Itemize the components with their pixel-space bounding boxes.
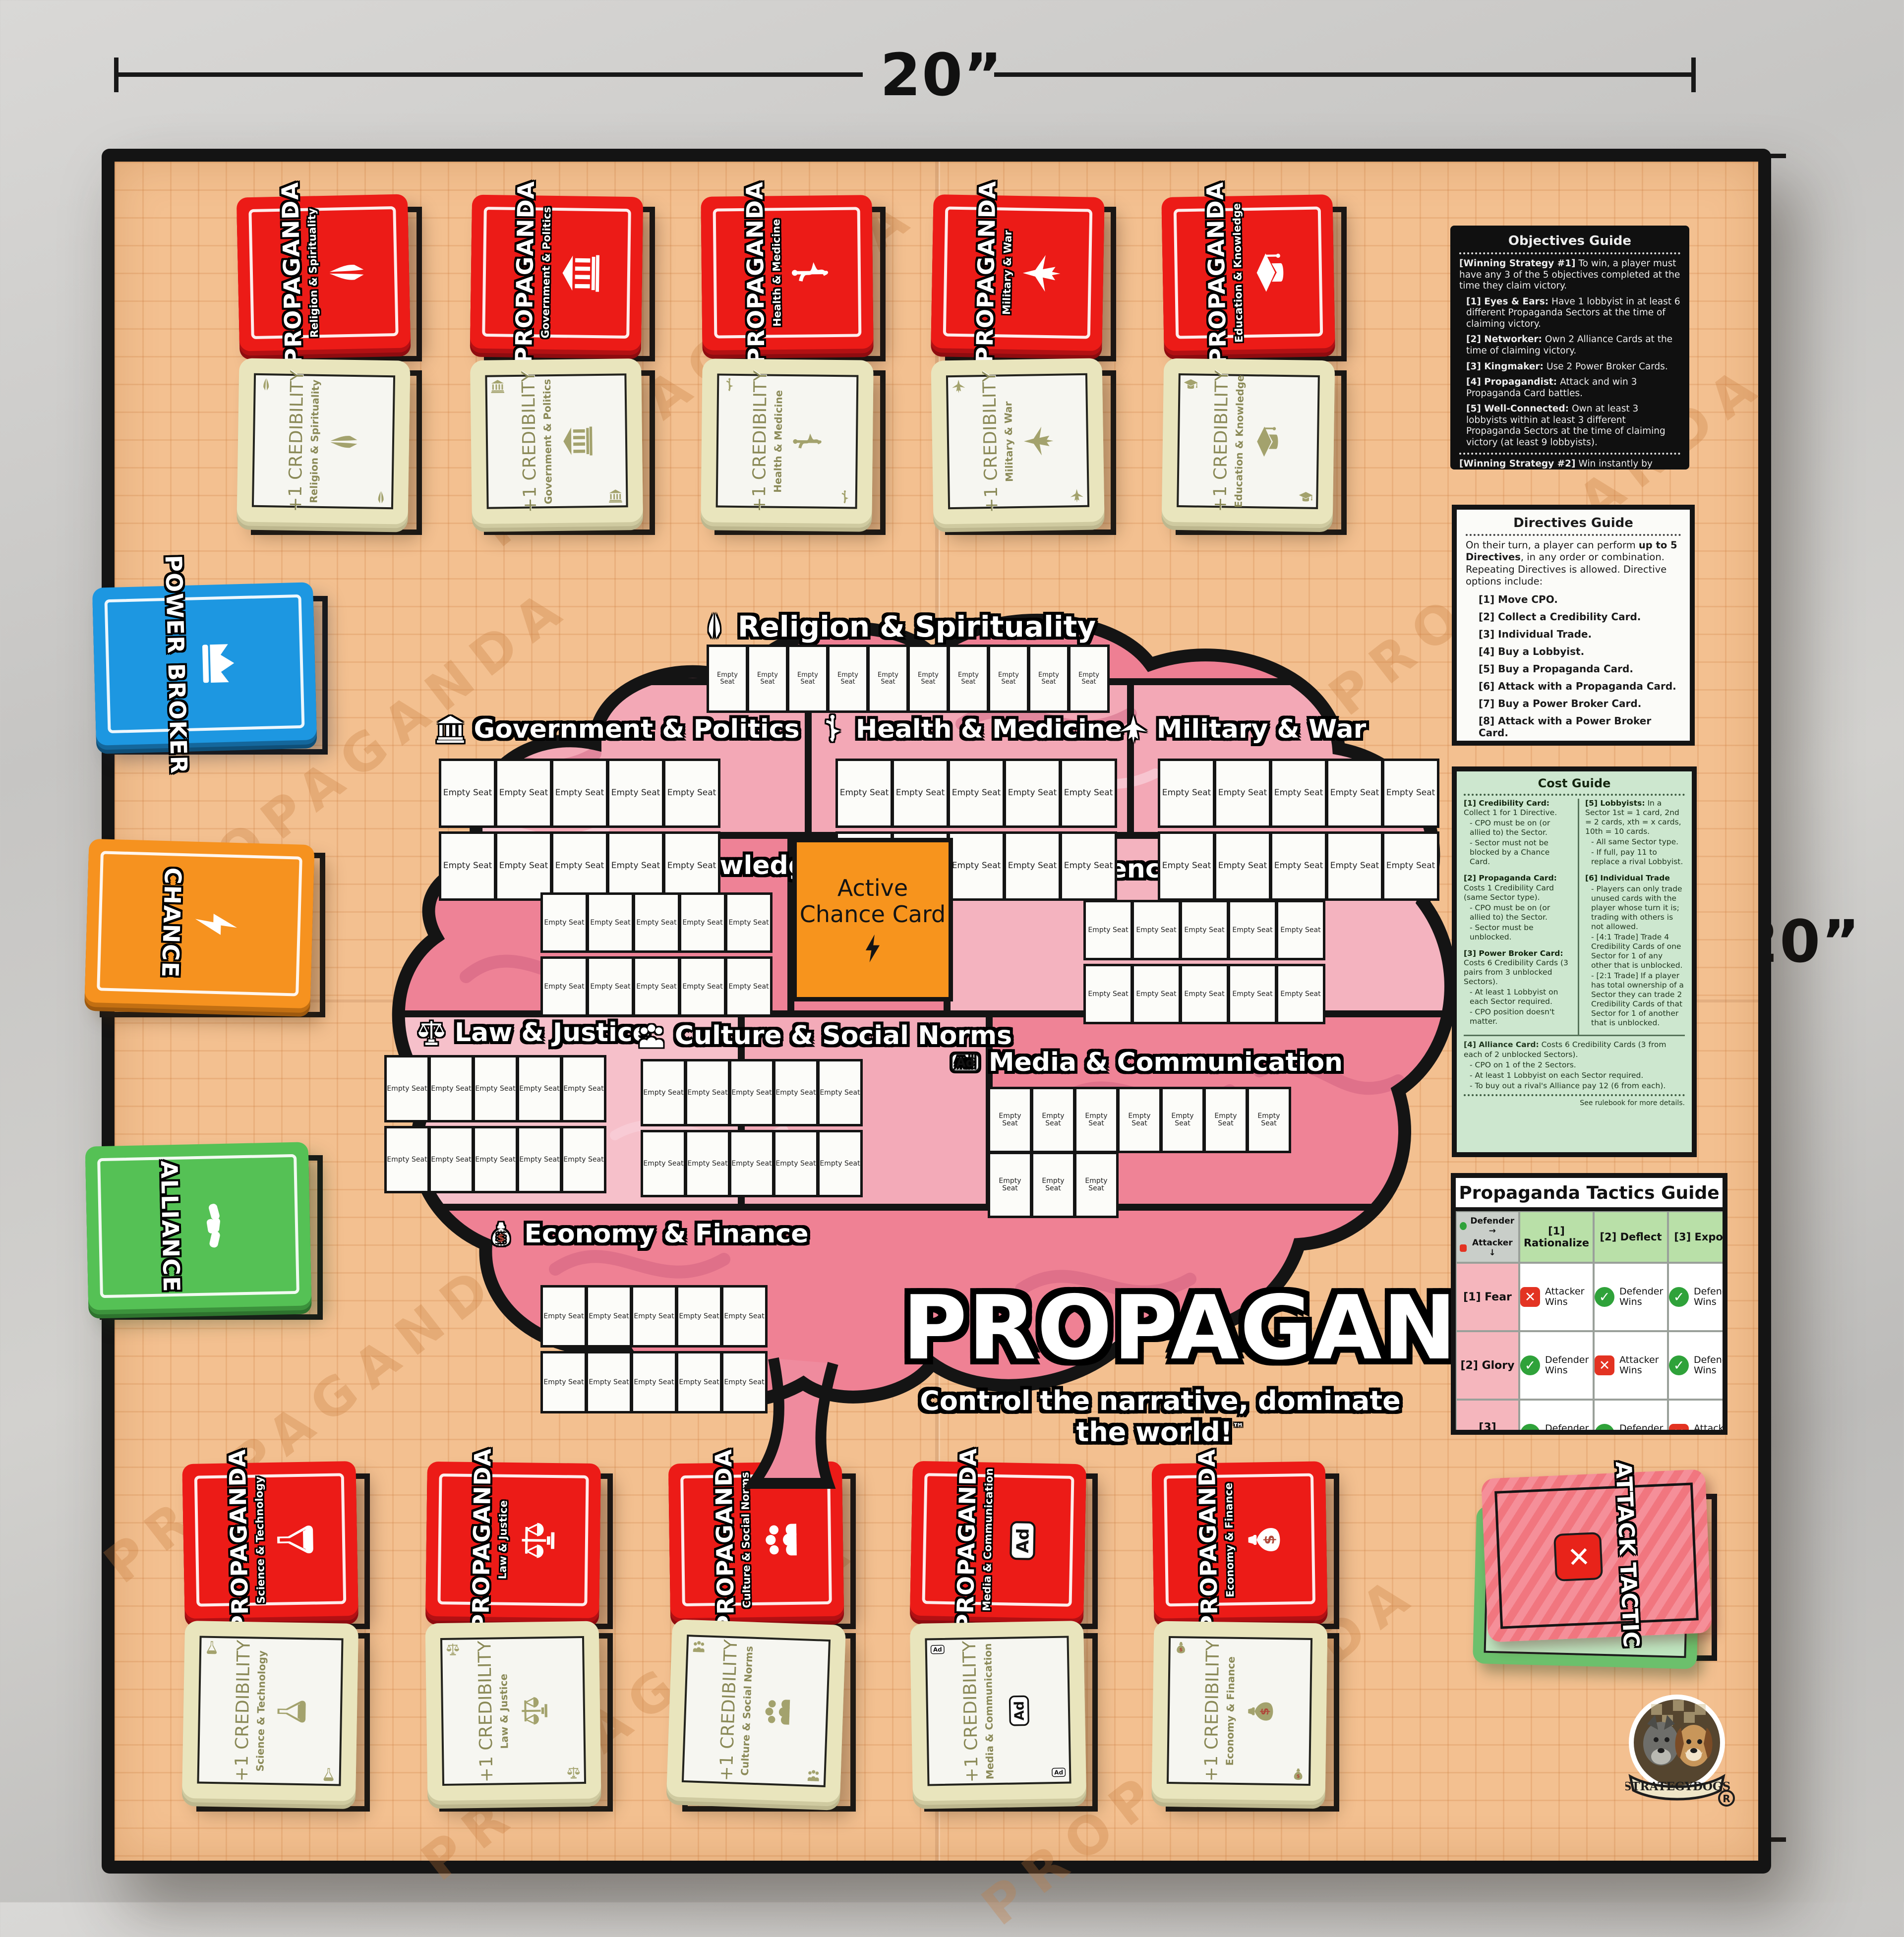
cost-bullet: - If full, pay 11 to replace a rival Lob… [1591,848,1685,867]
credibility-deck-education[interactable]: +1 CREDIBILITY Education & Knowledge [1163,359,1334,523]
width-dimension-label: 20” [880,41,1003,109]
empty-seat[interactable]: Empty Seat [679,892,726,953]
empty-seat[interactable]: Empty Seat [1028,645,1070,713]
credibility-card-title: +1 CREDIBILITY [716,1639,742,1781]
photo-stage: 20” 20” PROPAGANDA PROPAGANDA PROPAGANDA… [0,0,1904,1902]
card-text: +1 CREDIBILITY Media & Communication [959,1640,996,1782]
propaganda-deck-education[interactable]: PROPAGANDA Education & Knowledge [1163,196,1334,350]
empty-seat[interactable]: Empty Seat [607,759,664,828]
alliance-deck[interactable]: ALLIANCE [87,1144,310,1308]
empty-seat[interactable]: Empty Seat [1131,964,1181,1024]
active-chance-card-area[interactable]: Active Chance Card [792,838,953,1001]
empty-seat[interactable]: Empty Seat [1326,831,1383,901]
tactics-result: Defender Wins [1594,1400,1668,1435]
empty-seat[interactable]: Empty Seat [551,831,608,901]
empty-seat[interactable]: Empty Seat [948,645,989,713]
card-text: +1 CREDIBILITY Government & Politics [518,370,554,513]
card-text: PROPAGANDA Religion & Spirituality [277,181,321,365]
empty-seat[interactable]: Empty Seat [948,759,1005,828]
sector-icon [275,1695,308,1728]
empty-seat[interactable]: Empty Seat [473,1055,518,1122]
corner-sector-icon [1070,488,1084,503]
empty-seat[interactable]: Empty Seat [1228,900,1277,960]
empty-seat[interactable]: Empty Seat [561,1055,606,1122]
empty-seat[interactable]: Empty Seat [817,1130,863,1197]
power-broker-label: POWER BROKER [162,555,191,775]
credibility-deck-health[interactable]: +1 CREDIBILITY Health & Medicine [702,359,873,523]
sector-icon [1003,1694,1036,1727]
card-text: +1 CREDIBILITY Economy & Finance [1201,1640,1238,1782]
tactics-result: Defender Wins [1594,1263,1668,1331]
empty-seat[interactable]: Empty Seat [1158,831,1215,901]
card-text: +1 CREDIBILITY Religion & Spirituality [285,370,321,512]
credibility-card-sector: Military & War [1002,370,1015,512]
empty-seat[interactable]: Empty Seat [641,1059,686,1126]
empty-seat[interactable]: Empty Seat [428,1126,474,1193]
credibility-deck-card[interactable]: +1 CREDIBILITY Health & Medicine [701,358,873,524]
empty-seat[interactable]: Empty Seat [587,892,634,953]
credibility-card-title: +1 CREDIBILITY [1201,1640,1224,1781]
empty-seat[interactable]: Empty Seat [384,1126,430,1193]
corner-sector-icon [1298,490,1313,505]
propaganda-deck-religion[interactable]: PROPAGANDA Religion & Spirituality [238,196,409,350]
credibility-deck-religion[interactable]: +1 CREDIBILITY Religion & Spirituality [238,359,409,523]
tactics-result: Defender Wins [1519,1400,1594,1435]
medical-staff-icon [817,714,848,745]
empty-seat[interactable]: Empty Seat [1276,900,1325,960]
propaganda-deck-health[interactable]: PROPAGANDA Health & Medicine [702,196,873,350]
ruler-top-tick-left [114,58,119,92]
cost-item-individual-trade: [6] Individual Trade - Players can only … [1585,874,1685,1028]
empty-seat[interactable]: Empty Seat [540,1285,587,1348]
chance-card[interactable]: CHANCE [84,839,314,1009]
corner-sector-icon [806,1768,821,1783]
empty-seat[interactable]: Empty Seat [1276,964,1325,1024]
empty-seat[interactable]: Empty Seat [1214,759,1271,828]
power-broker-card[interactable]: POWER BROKER [92,582,317,746]
directive-item: [2] Collect a Credibility Card. [1479,611,1681,623]
sector-icon [1244,1695,1277,1728]
alliance-label: ALLIANCE [157,1160,183,1293]
ad-badge-icon [950,1047,981,1078]
propaganda-tactics-guide: Propaganda Tactics Guide Defender → Atta… [1451,1173,1727,1435]
empty-seat[interactable]: Empty Seat [473,1126,518,1193]
credibility-card-title: +1 CREDIBILITY [1210,370,1232,512]
active-chance-label: Active Chance Card [797,875,949,928]
corner-sector-icon [490,379,505,394]
empty-seat[interactable]: Empty Seat [988,1087,1032,1153]
seat-grid-education: Empty SeatEmpty SeatEmpty SeatEmpty Seat… [540,892,768,1017]
empty-seat[interactable]: Empty Seat [817,1059,863,1126]
empty-seat[interactable]: Empty Seat [867,645,909,713]
tactics-row-disgust: [3] Disgust [1456,1400,1519,1435]
propaganda-deck-card[interactable]: PROPAGANDA Education & Knowledge [1161,194,1335,351]
publisher-name-text: STRATEGYDOGS [1625,1780,1730,1793]
cost-bullet: - [4:1 Trade] Trade 4 Credibility Cards … [1591,933,1685,970]
directive-item: [5] Buy a Propaganda Card. [1479,663,1681,675]
directive-item: [8] Attack with a Power Broker Card. [1479,715,1681,739]
handshake-icon [190,1201,239,1250]
corner-sector-icon [321,1767,337,1782]
corner-sector-icon [691,1639,707,1654]
propaganda-card-title: PROPAGANDA [1201,181,1231,365]
empty-seat[interactable]: Empty Seat [676,1351,722,1413]
empty-seat[interactable]: Empty Seat [1074,1152,1119,1218]
directives-guide: Directives Guide On their turn, a player… [1452,505,1695,746]
ruler-top-line-left [114,72,863,77]
result-icon [1669,1355,1689,1375]
alliance-card[interactable]: ALLIANCE [85,1142,312,1310]
seat-grid-media-row1: Empty SeatEmpty SeatEmpty SeatEmpty Seat… [988,1087,1286,1153]
corner-sector-icon [722,378,737,393]
tactics-row-glory: [2] Glory [1456,1331,1519,1400]
result-icon [1520,1287,1540,1307]
empty-seat[interactable]: Empty Seat [586,1351,632,1413]
empty-seat[interactable]: Empty Seat [907,645,949,713]
cost-bullet: - CPO position doesn't matter. [1470,1007,1571,1026]
corner-sector-icon [1051,1765,1067,1780]
propaganda-card-sector: Education & Knowledge [1230,181,1245,364]
credibility-card-title: +1 CREDIBILITY [979,371,1002,513]
corner-sector-icon [951,379,966,394]
empty-seat[interactable]: Empty Seat [988,1152,1032,1218]
card-text: +1 CREDIBILITY Culture & Social Norms [716,1639,756,1782]
chance-deck[interactable]: CHANCE [87,842,312,1005]
propaganda-deck-card[interactable]: PROPAGANDA Health & Medicine [701,195,873,351]
empty-seat[interactable]: Empty Seat [1060,831,1117,901]
empty-seat[interactable]: Empty Seat [631,1285,677,1348]
empty-seat[interactable]: Empty Seat [725,892,773,953]
propaganda-card-title: PROPAGANDA [741,181,770,365]
publisher-logo: STRATEGYDOGS R [1625,1693,1736,1812]
credibility-card-sector: Economy & Finance [1224,1640,1238,1782]
empty-seat[interactable]: Empty Seat [517,1126,562,1193]
empty-seat[interactable]: Empty Seat [1180,900,1229,960]
result-icon [1595,1287,1614,1307]
credibility-deck-card[interactable]: +1 CREDIBILITY Science & Technology [182,1621,358,1801]
empty-seat[interactable]: Empty Seat [685,1130,730,1197]
empty-seat[interactable]: Empty Seat [1158,759,1215,828]
empty-seat[interactable]: Empty Seat [676,1285,722,1348]
card-text: +1 CREDIBILITY Science & Technology [232,1640,268,1782]
lightning-bolt-icon [857,933,889,964]
empty-seat[interactable]: Empty Seat [707,645,748,713]
empty-seat[interactable]: Empty Seat [988,645,1029,713]
empty-seat[interactable]: Empty Seat [540,956,588,1017]
cost-guide-right-column: [5] Lobbyists: In a Sector 1st = 1 card,… [1578,799,1685,1035]
credibility-deck-government[interactable]: +1 CREDIBILITY Government & Politics [471,359,642,523]
empty-seat[interactable]: Empty Seat [428,1055,474,1122]
empty-seat[interactable]: Empty Seat [1117,1087,1162,1153]
empty-seat[interactable]: Empty Seat [586,1285,632,1348]
seat-grid-religion: Empty SeatEmpty SeatEmpty SeatEmpty Seat… [707,645,1105,713]
power-broker-deck[interactable]: POWER BROKER [94,585,315,743]
objectives-guide: Objectives Guide [Winning Strategy #1]To… [1450,226,1689,470]
empty-seat[interactable]: Empty Seat [1060,759,1117,828]
tactics-result: Defender Wins [1668,1263,1727,1331]
credibility-deck-science[interactable]: +1 CREDIBILITY Science & Technology [183,1622,357,1800]
sector-icon [1243,1519,1285,1561]
empty-seat[interactable]: Empty Seat [495,759,552,828]
empty-seat[interactable]: Empty Seat [384,1055,430,1122]
empty-seat[interactable]: Empty Seat [551,759,608,828]
corner-sector-icon [445,1642,460,1656]
empty-seat[interactable]: Empty Seat [835,759,893,828]
cost-guide-left-column: [1] Credibility Card: Collect 1 for 1 Di… [1464,799,1571,1035]
attack-tactic-card[interactable]: ATTACK TACTIC ✕ [1481,1469,1712,1642]
empty-seat[interactable]: Empty Seat [747,645,788,713]
sector-icon [760,1695,794,1728]
cost-guide-title: Cost Guide [1464,776,1685,790]
propaganda-card-title: PROPAGANDA [277,181,307,365]
empty-seat[interactable]: Empty Seat [607,831,664,901]
empty-seat[interactable]: Empty Seat [721,1351,768,1413]
directives-guide-title: Directives Guide [1466,516,1681,530]
credibility-card-title: +1 CREDIBILITY [475,1641,497,1782]
sector-label-military: Military & War [1118,714,1367,745]
credibility-deck-card[interactable]: +1 CREDIBILITY Education & Knowledge [1162,358,1335,525]
tactics-column-expose: [3] Expose [1668,1211,1727,1263]
cost-bullet: - At least 1 Lobbyist on each Sector req… [1470,988,1571,1006]
credibility-deck-card[interactable]: +1 CREDIBILITY Economy & Finance [1152,1621,1328,1801]
empty-seat[interactable]: Empty Seat [1083,964,1133,1024]
directive-item: [1] Move CPO. [1479,593,1681,605]
credibility-deck-economy[interactable]: +1 CREDIBILITY Economy & Finance [1153,1622,1326,1800]
corner-sector-icon [837,490,852,505]
empty-seat[interactable]: Empty Seat [1083,900,1133,960]
result-icon [1595,1424,1614,1435]
cost-guide-footer: See rulebook for more details. [1464,1099,1685,1107]
empty-seat[interactable]: Empty Seat [725,956,773,1017]
cost-bullet: - Sector must not be blocked by a Chance… [1470,838,1571,867]
credibility-deck-card[interactable]: +1 CREDIBILITY Religion & Spirituality [237,358,410,524]
credibility-deck-card[interactable]: +1 CREDIBILITY Law & Justice [425,1621,601,1801]
credibility-card-title: +1 CREDIBILITY [285,370,307,512]
empty-seat[interactable]: Empty Seat [631,1351,677,1413]
sector-icon [327,251,369,293]
propaganda-deck-card[interactable]: PROPAGANDA Government & Politics [470,195,643,351]
tactics-row-fear: [1] Fear [1456,1263,1519,1331]
empty-seat[interactable]: Empty Seat [540,1351,587,1413]
empty-seat[interactable]: Empty Seat [633,892,680,953]
cost-bullet: - To buy out a rival's Alliance pay 12 (… [1470,1081,1685,1091]
tactics-column-rationalize: [1] Rationalize [1519,1211,1594,1263]
seat-grid-media-row2: Empty SeatEmpty SeatEmpty Seat [988,1152,1114,1218]
empty-seat[interactable]: Empty Seat [1160,1087,1205,1153]
empty-seat[interactable]: Empty Seat [633,956,680,1017]
empty-seat[interactable]: Empty Seat [1203,1087,1248,1153]
directive-item: [9] Buy an Alliance Card. [1479,744,1681,746]
x-attack-icon: ✕ [1553,1532,1603,1582]
empty-seat[interactable]: Empty Seat [587,956,634,1017]
seat-grid-government: Empty SeatEmpty SeatEmpty SeatEmpty Seat… [439,759,715,901]
defender-dot-icon [1460,1222,1467,1230]
bank-icon [435,714,466,745]
empty-seat[interactable]: Empty Seat [439,831,496,901]
card-text: +1 CREDIBILITY Health & Medicine [749,370,785,512]
credibility-deck-card[interactable]: +1 CREDIBILITY Government & Politics [470,358,643,524]
empty-seat[interactable]: Empty Seat [1031,1087,1075,1153]
credibility-card-sector: Law & Justice [497,1640,511,1782]
propaganda-deck-government[interactable]: PROPAGANDA Government & Politics [471,196,642,350]
propaganda-card-title: PROPAGANDA [224,1449,253,1632]
credibility-deck-card[interactable]: +1 CREDIBILITY Media & Communication [910,1621,1086,1801]
credibility-deck-card[interactable]: +1 CREDIBILITY Culture & Social Norms [666,1619,846,1803]
empty-seat[interactable]: Empty Seat [641,1130,686,1197]
empty-seat[interactable]: Empty Seat [773,1059,819,1126]
objective-item: [3] Kingmaker:Use 2 Power Broker Cards. [1466,361,1680,373]
praying-hands-icon [699,611,730,642]
attack-tactic-deck[interactable]: ATTACK TACTIC ✕ [1487,1485,1708,1651]
empty-seat[interactable]: Empty Seat [721,1285,768,1348]
tactics-result: Defender Wins [1519,1331,1594,1400]
empty-seat[interactable]: Empty Seat [1228,964,1277,1024]
empty-seat[interactable]: Empty Seat [1031,1152,1075,1218]
corner-sector-icon [1183,377,1198,392]
cost-bullet: - CPO must be on (or allied to) the Sect… [1470,903,1571,922]
empty-seat[interactable]: Empty Seat [1270,759,1327,828]
empty-seat[interactable]: Empty Seat [663,831,720,901]
ruler-top-tick-right [1691,58,1696,92]
corner-sector-icon [566,1765,581,1780]
cost-bullet: - CPO must be on (or allied to) the Sect… [1470,819,1571,837]
credibility-card-sector: Science & Technology [254,1640,268,1782]
credibility-card-title: +1 CREDIBILITY [232,1640,254,1781]
card-text: PROPAGANDA Military & War [971,180,1014,364]
result-icon [1669,1287,1689,1307]
empty-seat[interactable]: Empty Seat [685,1059,730,1126]
empty-seat[interactable]: Empty Seat [679,956,726,1017]
directive-item: [4] Buy a Lobbyist. [1479,646,1681,657]
objective-item: [5] Well-Connected:Own at least 3 lobbyi… [1466,404,1680,448]
empty-seat[interactable]: Empty Seat [729,1059,774,1126]
propaganda-deck-military[interactable]: PROPAGANDA Military & War [932,196,1103,350]
credibility-deck-card[interactable]: +1 CREDIBILITY Military & War [931,358,1104,524]
card-text: +1 CREDIBILITY Law & Justice [475,1640,511,1782]
winning-strategy-2: [Winning Strategy #2]Win instantly by be… [1459,459,1680,470]
sector-icon [759,1519,801,1561]
credibility-deck-culture[interactable]: +1 CREDIBILITY Culture & Social Norms [669,1622,843,1800]
propaganda-card-sector: Government & Politics [539,181,553,364]
empty-seat[interactable]: Empty Seat [1247,1087,1291,1153]
sector-icon [273,1518,315,1560]
tactics-result: Defender Wins [1668,1331,1727,1400]
credibility-deck-military[interactable]: +1 CREDIBILITY Military & War [932,359,1103,523]
money-bag-icon [485,1219,516,1249]
directives-list: [1] Move CPO.[2] Collect a Credibility C… [1466,593,1681,746]
empty-seat[interactable]: Empty Seat [1068,645,1110,713]
result-icon [1669,1424,1689,1435]
sector-icon [516,1519,558,1561]
credibility-deck-law[interactable]: +1 CREDIBILITY Law & Justice [426,1622,600,1800]
empty-seat[interactable]: Empty Seat [439,759,496,828]
sector-icon [792,425,825,458]
empty-seat[interactable]: Empty Seat [517,1055,562,1122]
cost-bullet: - Sector must be unblocked. [1470,923,1571,942]
empty-seat[interactable]: Empty Seat [1326,759,1383,828]
empty-seat[interactable]: Empty Seat [787,645,829,713]
empty-seat[interactable]: Empty Seat [495,831,552,901]
game-logo: PROPAGANDA® Control the narrative, domin… [902,1284,1418,1448]
propaganda-deck-card[interactable]: PROPAGANDA Military & War [931,194,1104,351]
credibility-card-sector: Education & Knowledge [1232,370,1246,512]
cost-item-credibility: [1] Credibility Card: Collect 1 for 1 Di… [1464,799,1571,867]
sector-label-economy: Economy & Finance [485,1219,808,1249]
sector-label-health: Health & Medicine [817,714,1123,745]
seat-grid-economy: Empty SeatEmpty SeatEmpty SeatEmpty Seat… [540,1285,763,1413]
corner-sector-icon [1291,1766,1306,1781]
empty-seat[interactable]: Empty Seat [1004,759,1061,828]
empty-seat[interactable]: Empty Seat [1180,964,1229,1024]
cost-bullet: - Players can only trade unused cards wi… [1591,884,1685,932]
cost-item-propaganda: [2] Propaganda Card: Costs 1 Credibility… [1464,874,1571,941]
cost-guide: Cost Guide [1] Credibility Card: Collect… [1452,766,1697,1157]
credibility-deck-media[interactable]: +1 CREDIBILITY Media & Communication [911,1622,1085,1800]
lightning-bolt-icon [191,900,240,949]
seat-grid-military: Empty SeatEmpty SeatEmpty SeatEmpty Seat… [1158,759,1434,901]
corner-sector-icon [608,488,623,503]
directives-intro: On their turn, a player can perform up t… [1466,539,1681,588]
card-text: PROPAGANDA Science & Technology [224,1449,267,1632]
cost-bullet: - CPO on 1 of the 2 Sectors. [1470,1060,1685,1070]
sector-icon [560,252,602,294]
propaganda-card-title: PROPAGANDA [510,180,539,364]
empty-seat[interactable]: Empty Seat [1131,900,1181,960]
empty-seat[interactable]: Empty Seat [892,759,949,828]
empty-seat[interactable]: Empty Seat [663,759,720,828]
empty-seat[interactable]: Empty Seat [729,1130,774,1197]
corner-sector-icon [373,490,388,505]
empty-seat[interactable]: Empty Seat [1270,831,1327,901]
fighter-jet-icon [1118,714,1149,745]
crown-icon [196,639,245,688]
sector-icon [1251,251,1294,293]
credibility-card-sector: Media & Communication [982,1640,996,1782]
empty-seat[interactable]: Empty Seat [1382,831,1439,901]
tactics-corner-header: Defender → Attacker ↓ [1456,1211,1519,1263]
empty-seat[interactable]: Empty Seat [540,892,588,953]
empty-seat[interactable]: Empty Seat [1214,831,1271,901]
svg-text:R: R [1723,1793,1730,1805]
sector-label-culture: Culture & Social Norms [636,1020,1012,1051]
propaganda-card-title: PROPAGANDA [971,180,1001,364]
chance-label: CHANCE [158,867,185,979]
propaganda-deck-card[interactable]: PROPAGANDA Religion & Spirituality [237,194,411,351]
empty-seat[interactable]: Empty Seat [1382,759,1439,828]
seat-grid-culture: Empty SeatEmpty SeatEmpty SeatEmpty Seat… [641,1059,858,1197]
corner-sector-icon [1174,1640,1189,1655]
sector-icon [1001,1519,1044,1562]
result-icon [1520,1355,1540,1375]
empty-seat[interactable]: Empty Seat [773,1130,819,1197]
sector-icon [561,424,595,458]
card-text: PROPAGANDA Government & Politics [510,180,553,364]
credibility-card-sector: Culture & Social Norms [739,1640,756,1781]
seat-grid-law: Empty SeatEmpty SeatEmpty SeatEmpty Seat… [384,1055,601,1193]
empty-seat[interactable]: Empty Seat [948,831,1005,901]
empty-seat[interactable]: Empty Seat [1074,1087,1119,1153]
result-icon [1520,1424,1540,1435]
sector-icon [1021,252,1063,294]
cost-item-lobbyists: [5] Lobbyists: In a Sector 1st = 1 card,… [1585,799,1685,867]
empty-seat[interactable]: Empty Seat [827,645,869,713]
empty-seat[interactable]: Empty Seat [1004,831,1061,901]
objective-item: [1] Eyes & Ears:Have 1 lobbyist in at le… [1466,296,1680,330]
corner-sector-icon [259,377,274,392]
objectives-guide-title: Objectives Guide [1459,234,1680,248]
empty-seat[interactable]: Empty Seat [561,1126,606,1193]
sector-icon [1253,425,1286,458]
